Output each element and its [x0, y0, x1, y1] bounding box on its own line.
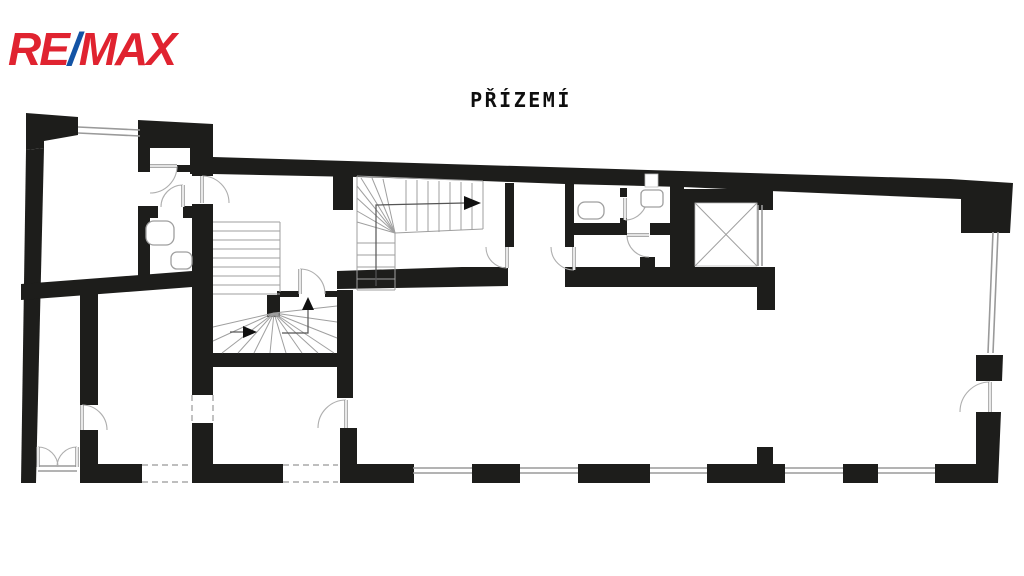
walls — [21, 113, 1013, 483]
floorplan-canvas — [0, 0, 1024, 576]
